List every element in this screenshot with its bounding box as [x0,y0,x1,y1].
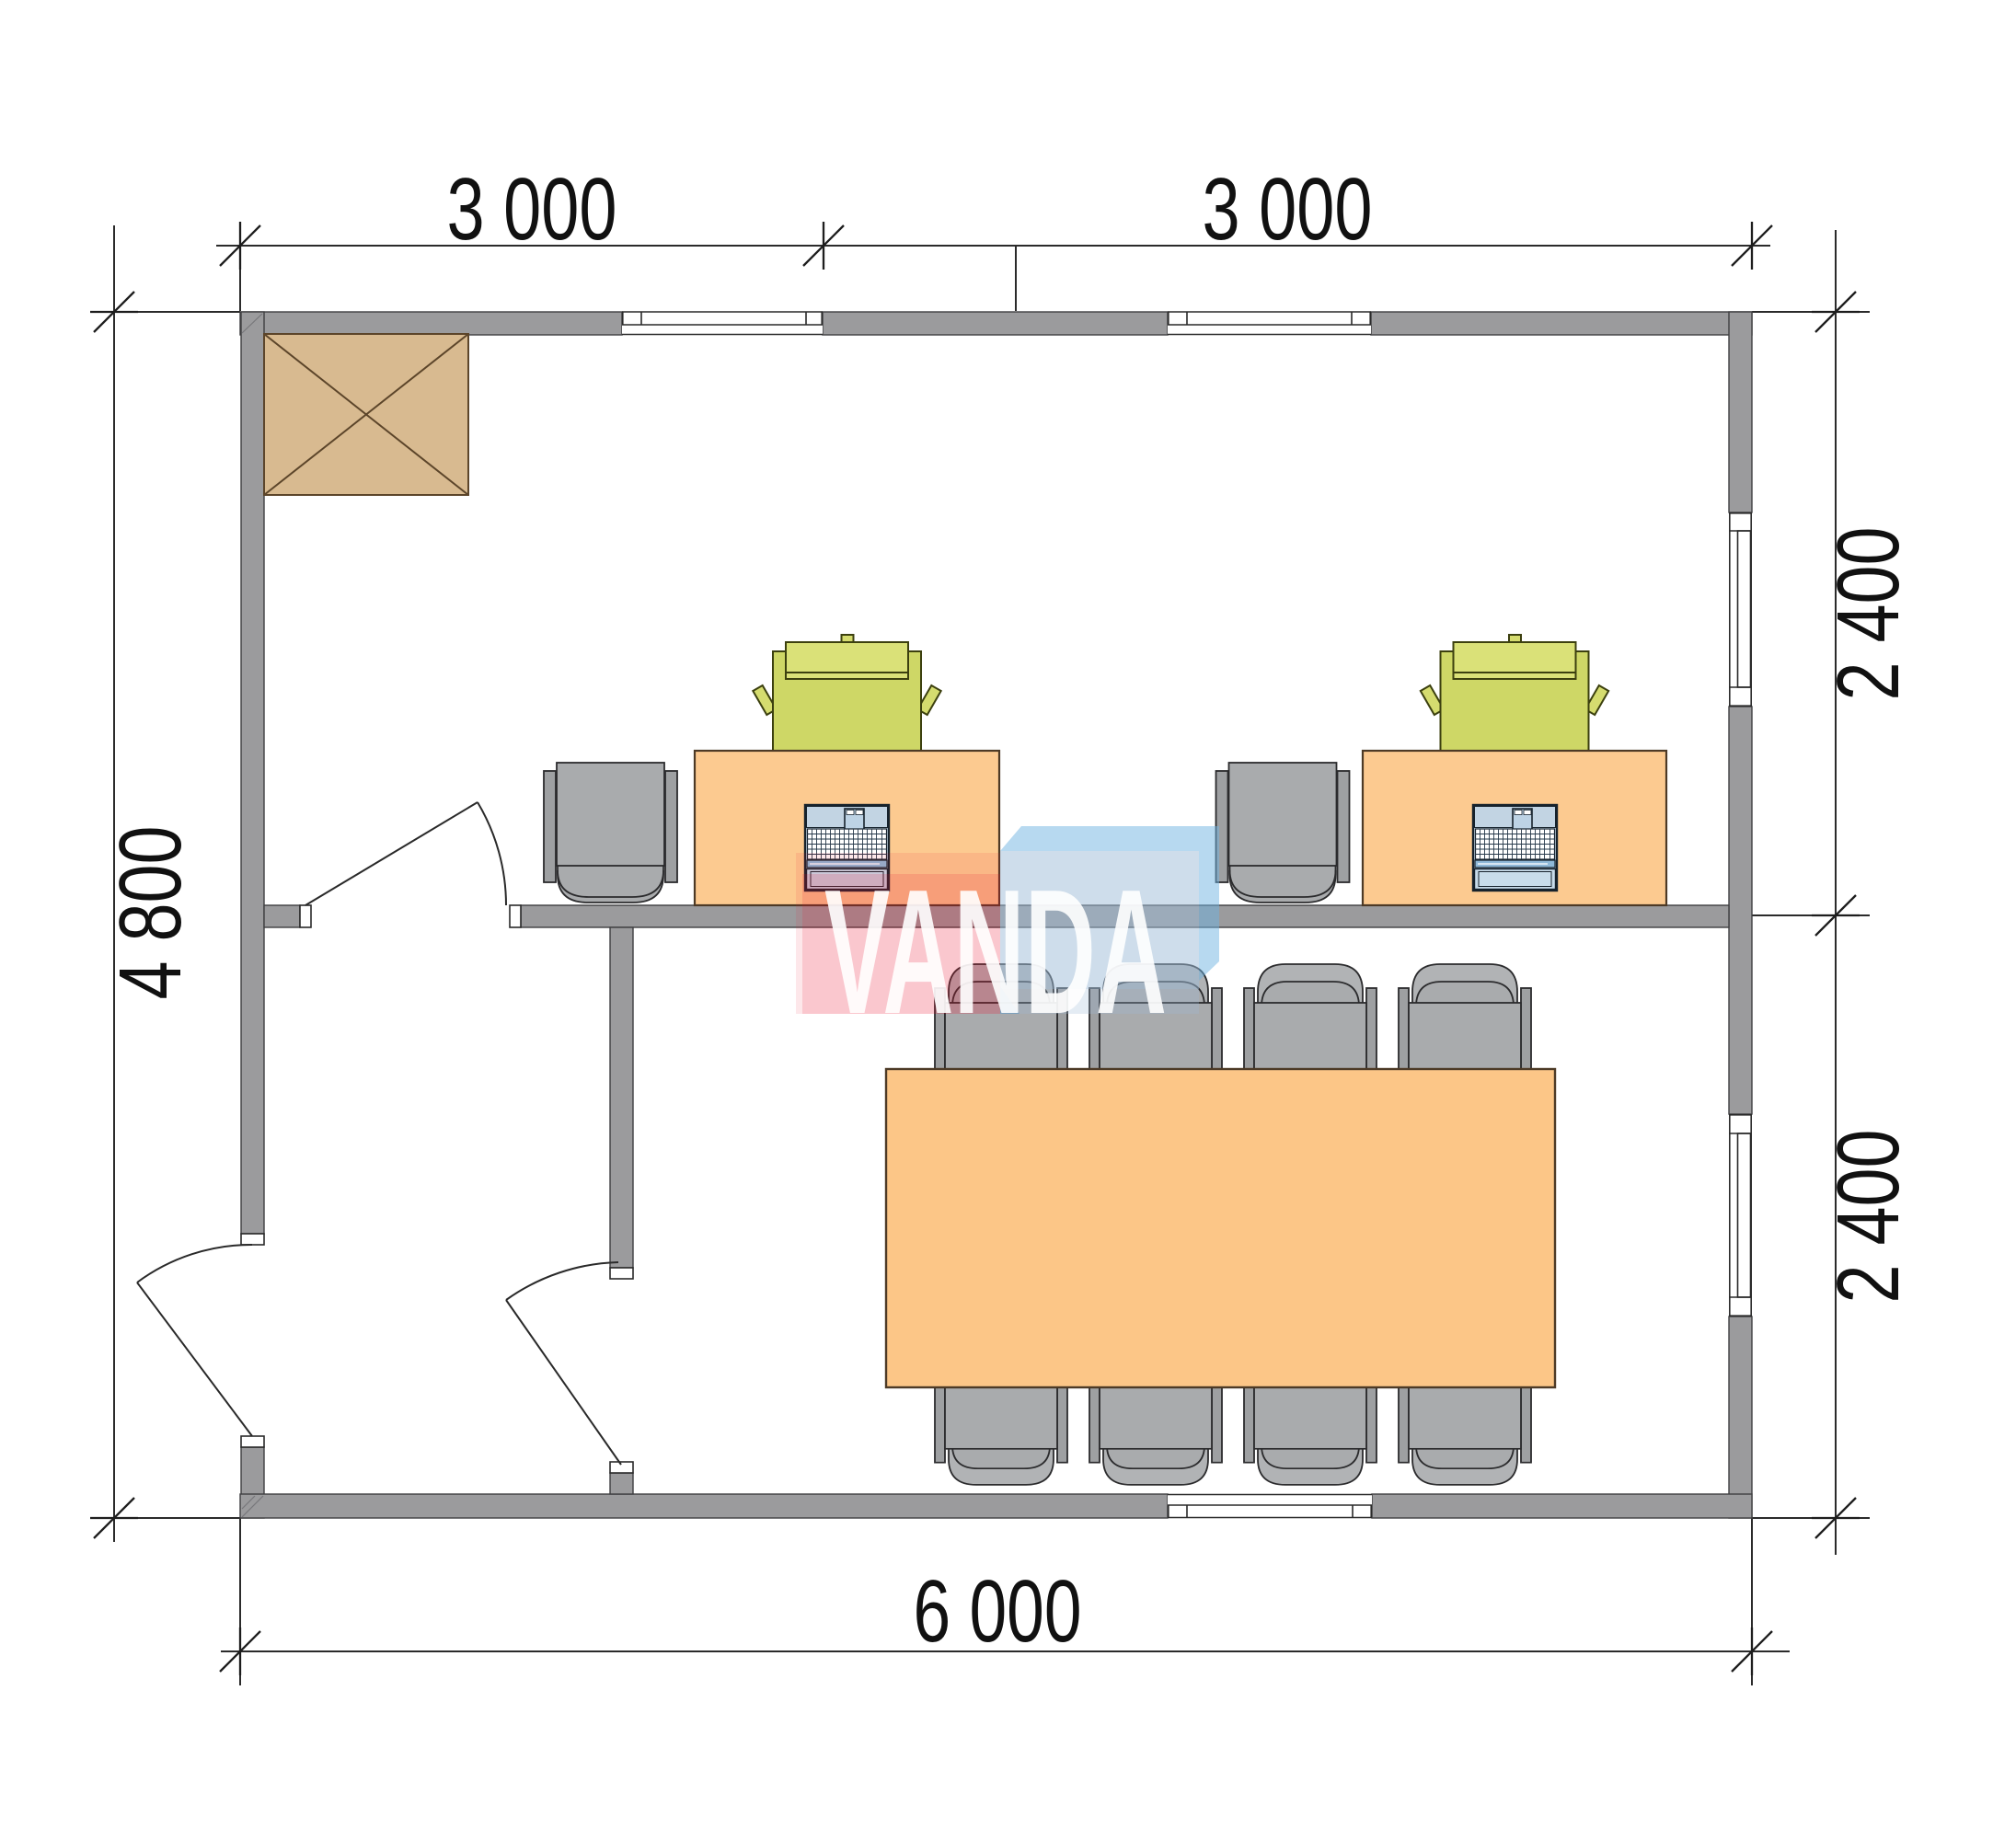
svg-text:2 400: 2 400 [1819,527,1918,701]
svg-text:2 400: 2 400 [1819,1130,1918,1304]
svg-text:3 000: 3 000 [1203,160,1373,259]
svg-text:3 000: 3 000 [447,160,617,259]
svg-text:6 000: 6 000 [914,1562,1082,1661]
svg-text:4 800: 4 800 [101,826,200,1000]
svg-text:VANDA: VANDA [824,852,1167,1051]
